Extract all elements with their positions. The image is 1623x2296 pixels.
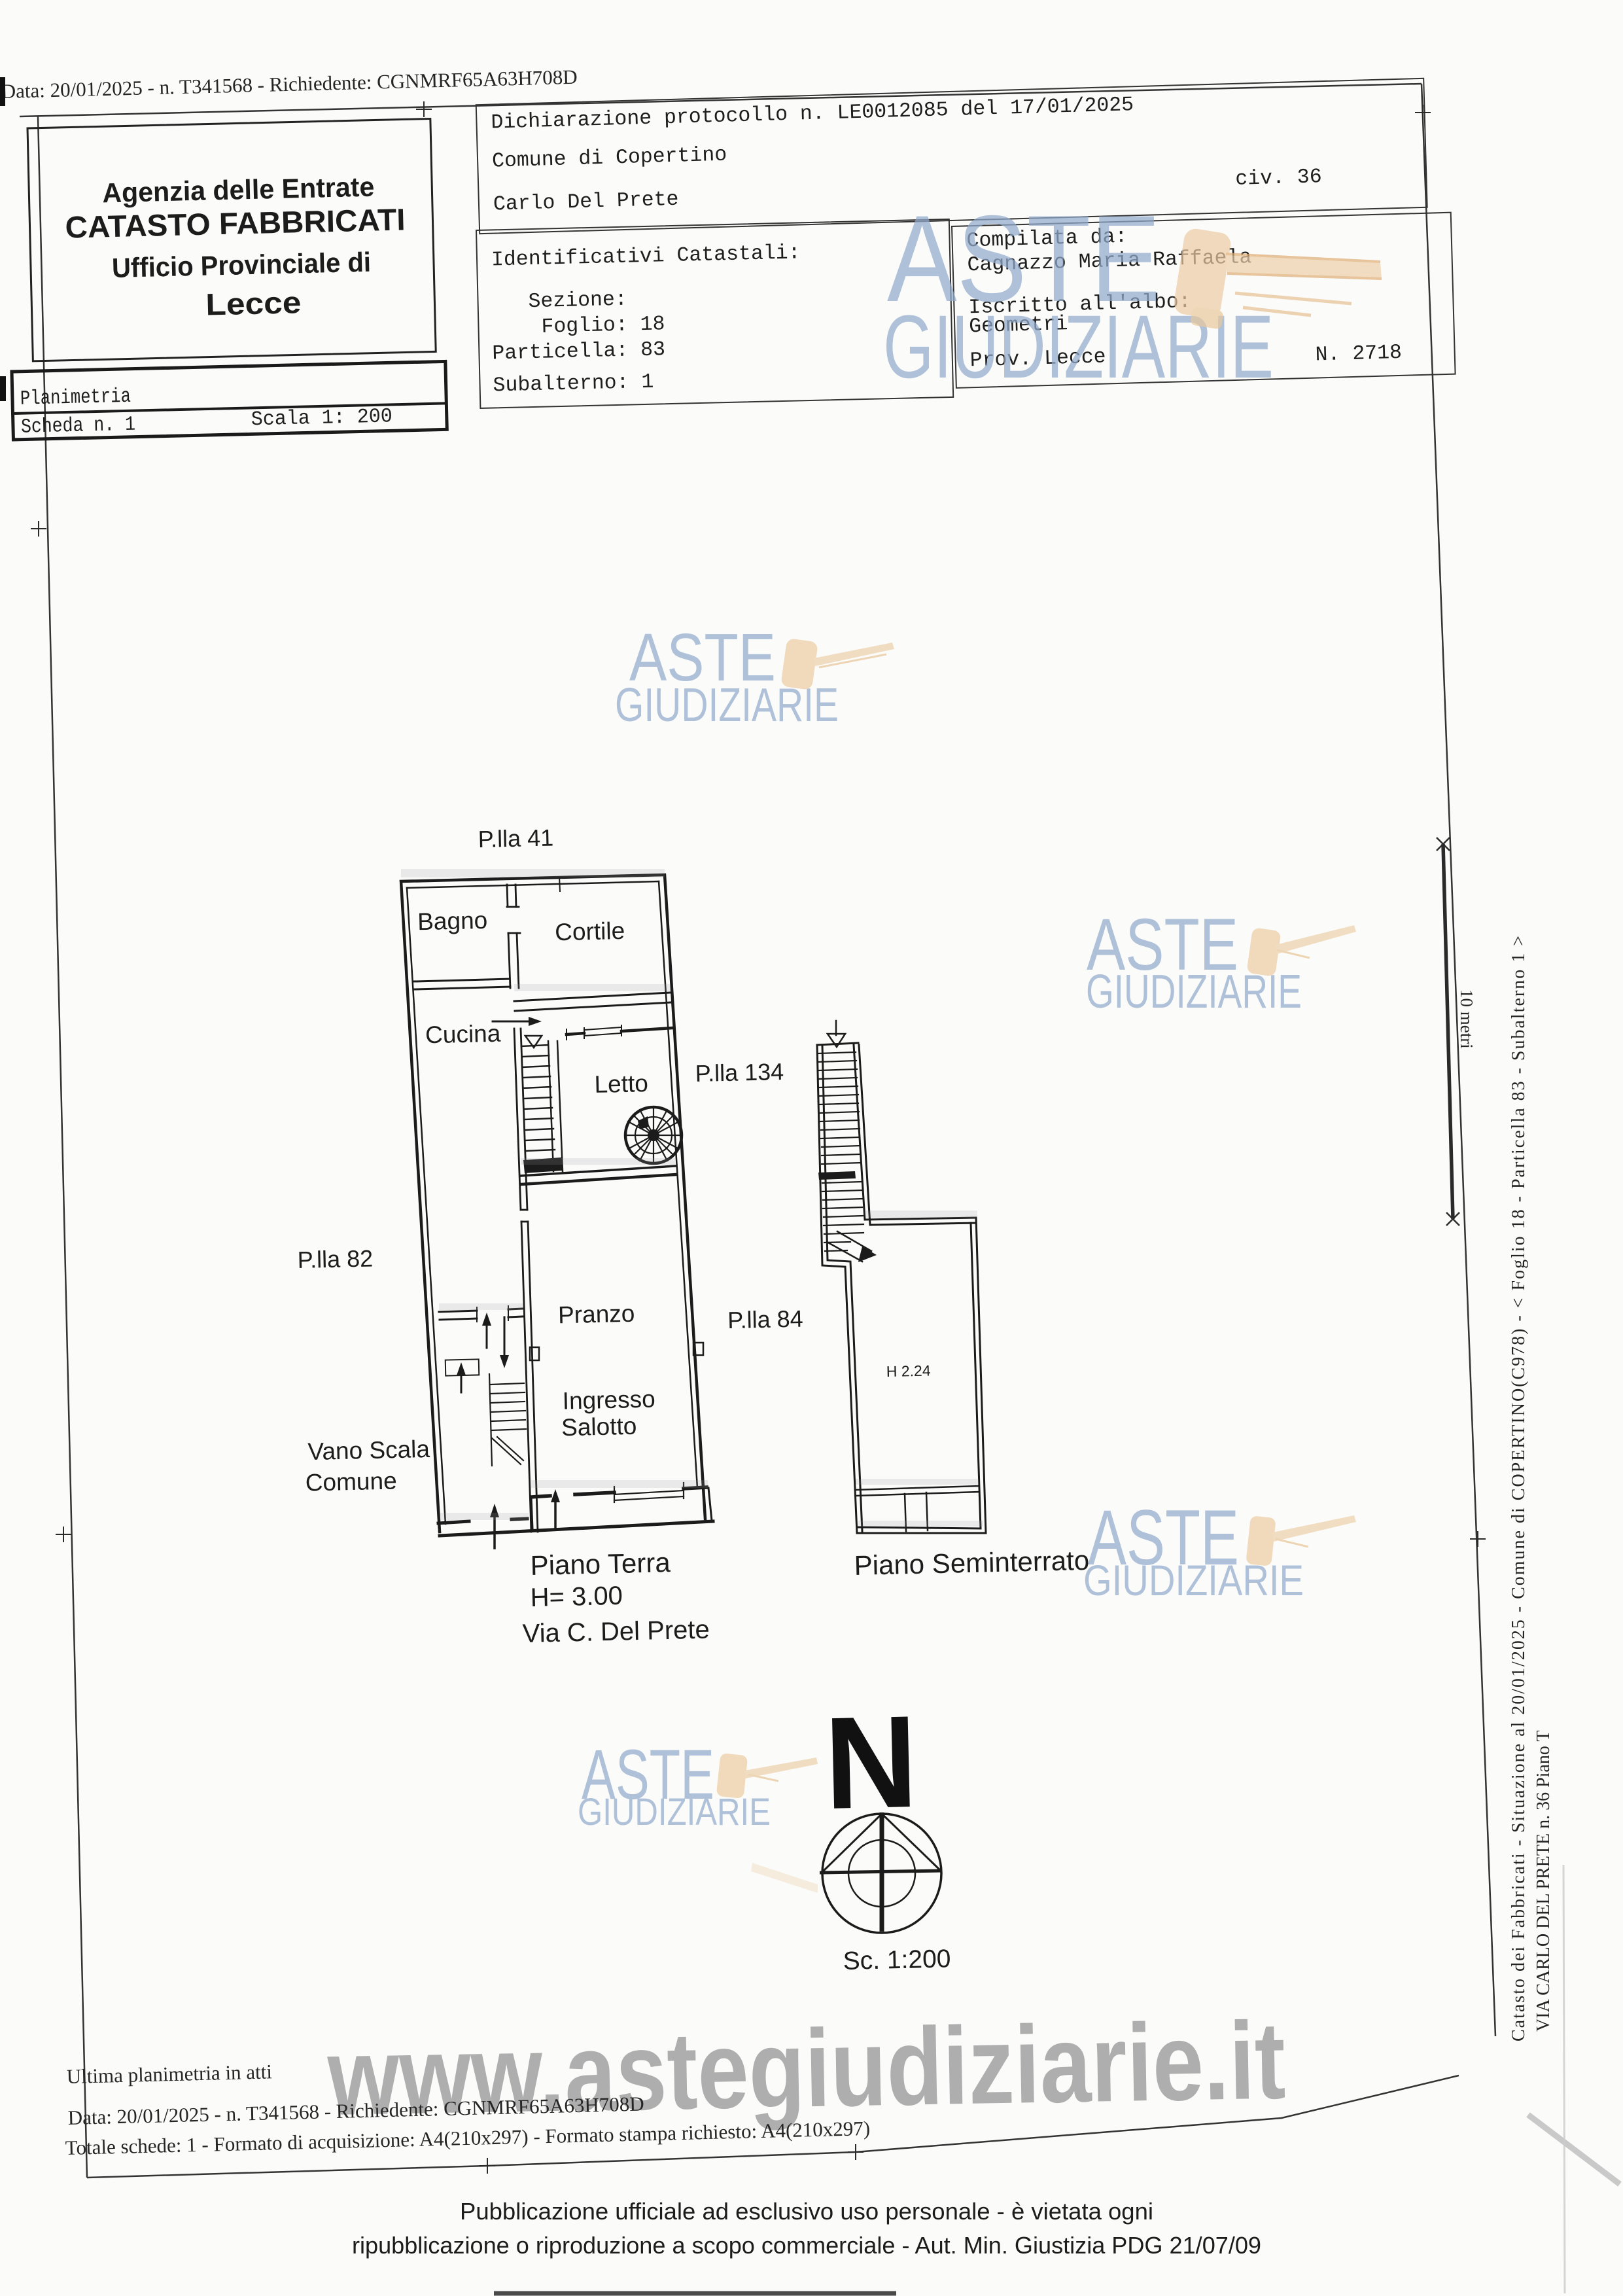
svg-text:Subalterno: 1: Subalterno: 1 <box>493 371 654 398</box>
svg-text:H 2.24: H 2.24 <box>886 1362 932 1380</box>
svg-text:Particella: 83: Particella: 83 <box>492 338 665 365</box>
svg-text:Agenzia delle Entrate: Agenzia delle Entrate <box>102 171 375 209</box>
svg-text:Sezione:: Sezione: <box>528 289 627 314</box>
svg-text:Planimetria: Planimetria <box>20 385 131 411</box>
svg-text:Pranzo: Pranzo <box>558 1300 635 1329</box>
svg-text:N. 2718: N. 2718 <box>1315 342 1402 367</box>
svg-text:ripubblicazione o riproduzione: ripubblicazione o riproduzione a scopo c… <box>352 2232 1261 2259</box>
svg-text:Bagno: Bagno <box>417 907 488 935</box>
svg-text:10 metri: 10 metri <box>1457 989 1476 1049</box>
svg-text:Ufficio Provinciale di: Ufficio Provinciale di <box>112 247 372 283</box>
svg-text:Scala 1: 200: Scala 1: 200 <box>251 405 393 431</box>
svg-text:P.lla 41: P.lla 41 <box>478 824 553 853</box>
svg-text:Piano Terra: Piano Terra <box>530 1547 671 1581</box>
svg-text:GIUDIZIARIE: GIUDIZIARIE <box>1083 1556 1304 1604</box>
svg-text:Vano Scala: Vano Scala <box>307 1436 430 1465</box>
svg-text:Comune: Comune <box>305 1467 397 1496</box>
svg-text:P.lla 134: P.lla 134 <box>695 1058 784 1087</box>
svg-text:civ. 36: civ. 36 <box>1235 166 1322 191</box>
svg-text:Cucina: Cucina <box>425 1020 501 1049</box>
svg-text:Salotto: Salotto <box>561 1413 637 1441</box>
svg-text:Cortile: Cortile <box>555 917 625 945</box>
svg-text:Scheda n. 1: Scheda n. 1 <box>21 414 136 439</box>
svg-text:Sc. 1:200: Sc. 1:200 <box>843 1945 951 1975</box>
svg-text:GIUDIZIARIE: GIUDIZIARIE <box>578 1791 771 1833</box>
svg-text:VIA CARLO DEL PRETE n. 36 Pian: VIA CARLO DEL PRETE n. 36 Piano T <box>1533 1731 1554 2032</box>
svg-text:Foglio: 18: Foglio: 18 <box>541 313 665 338</box>
svg-text:Ingresso: Ingresso <box>562 1385 655 1414</box>
svg-text:Pubblicazione ufficiale ad esc: Pubblicazione ufficiale ad esclusivo uso… <box>460 2198 1153 2225</box>
svg-text:Via C. Del Prete: Via C. Del Prete <box>522 1616 710 1648</box>
svg-text:Letto: Letto <box>594 1070 648 1098</box>
svg-text:Lecce: Lecce <box>205 285 302 321</box>
svg-text:H= 3.00: H= 3.00 <box>530 1581 623 1612</box>
svg-text:Piano Seminterrato: Piano Seminterrato <box>854 1545 1090 1581</box>
svg-text:P.lla 82: P.lla 82 <box>297 1245 373 1273</box>
svg-text:P.lla 84: P.lla 84 <box>727 1305 803 1334</box>
